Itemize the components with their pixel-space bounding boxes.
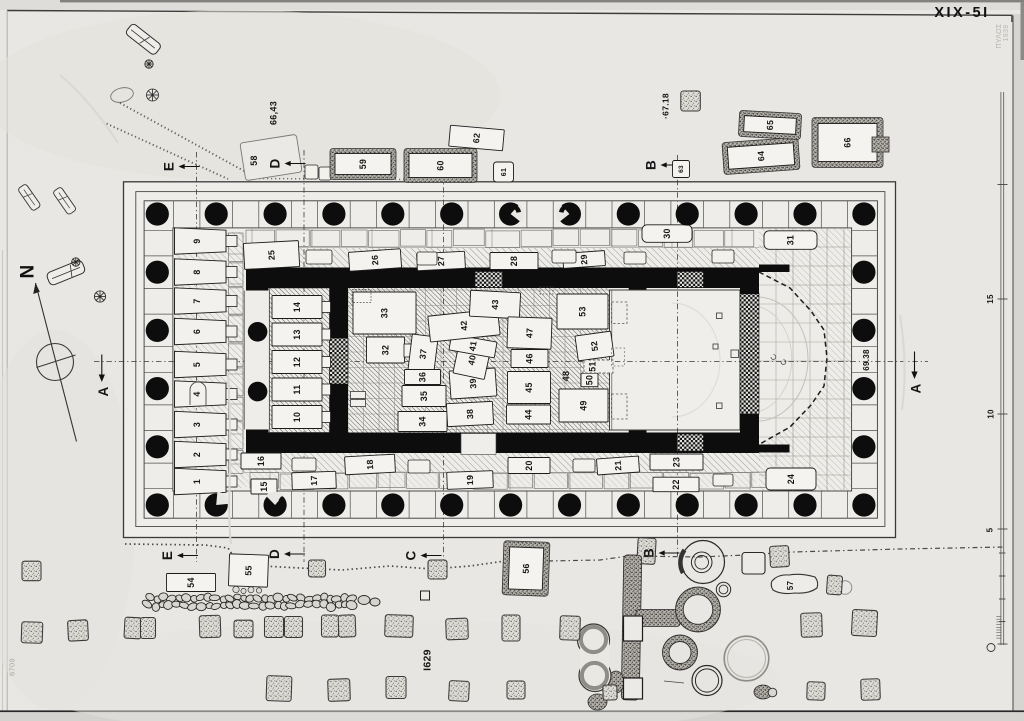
svg-text:65: 65 bbox=[765, 120, 776, 131]
svg-text:5: 5 bbox=[192, 362, 202, 367]
svg-text:4: 4 bbox=[192, 391, 202, 396]
svg-text:6709: 6709 bbox=[8, 658, 17, 676]
svg-text:66: 66 bbox=[842, 137, 852, 147]
svg-text:1939: 1939 bbox=[1003, 25, 1010, 42]
svg-text:I629: I629 bbox=[422, 649, 434, 671]
svg-text:31: 31 bbox=[785, 235, 795, 245]
svg-text:62: 62 bbox=[471, 132, 482, 143]
svg-text:48: 48 bbox=[561, 371, 571, 382]
svg-text:18: 18 bbox=[365, 459, 376, 470]
svg-text:10: 10 bbox=[987, 409, 996, 419]
svg-text:51: 51 bbox=[587, 361, 597, 371]
svg-text:23: 23 bbox=[671, 457, 681, 467]
svg-text:47: 47 bbox=[524, 328, 534, 339]
svg-text:64: 64 bbox=[756, 150, 767, 161]
svg-text:D: D bbox=[267, 549, 282, 559]
svg-text:A: A bbox=[96, 386, 111, 396]
svg-text:9: 9 bbox=[192, 238, 202, 243]
svg-text:E: E bbox=[160, 551, 175, 560]
svg-text:50: 50 bbox=[584, 375, 594, 385]
svg-text:56: 56 bbox=[521, 563, 531, 574]
svg-text:63: 63 bbox=[678, 165, 685, 173]
svg-text:1: 1 bbox=[192, 479, 202, 484]
svg-text:17: 17 bbox=[309, 475, 319, 486]
svg-text:29: 29 bbox=[579, 254, 590, 265]
svg-text:69.38: 69.38 bbox=[862, 349, 871, 371]
svg-text:D: D bbox=[268, 158, 283, 168]
svg-text:12: 12 bbox=[292, 357, 302, 367]
svg-text:6: 6 bbox=[192, 329, 202, 334]
svg-text:30: 30 bbox=[662, 228, 672, 238]
svg-text:ΠΥΛΟΣ: ΠΥΛΟΣ bbox=[996, 23, 1003, 48]
svg-text:35: 35 bbox=[419, 391, 429, 401]
svg-text:3: 3 bbox=[192, 422, 202, 427]
svg-text:N: N bbox=[17, 264, 38, 278]
svg-text:5: 5 bbox=[986, 527, 995, 532]
svg-text:A: A bbox=[909, 383, 924, 393]
svg-text:21: 21 bbox=[613, 460, 624, 471]
svg-text:26: 26 bbox=[370, 254, 381, 265]
svg-text:38: 38 bbox=[465, 409, 476, 420]
svg-text:13: 13 bbox=[292, 329, 302, 339]
svg-text:10: 10 bbox=[292, 412, 302, 422]
svg-text:34: 34 bbox=[417, 416, 427, 426]
svg-text:36: 36 bbox=[417, 372, 427, 382]
svg-text:XIX-5I: XIX-5I bbox=[934, 5, 989, 21]
svg-text:45: 45 bbox=[524, 382, 534, 392]
svg-text:28: 28 bbox=[509, 256, 519, 266]
svg-text:14: 14 bbox=[292, 302, 302, 312]
svg-text:42: 42 bbox=[458, 320, 469, 331]
svg-text:·67.18: ·67.18 bbox=[660, 93, 670, 119]
svg-text:58: 58 bbox=[249, 155, 259, 165]
svg-text:37: 37 bbox=[417, 348, 428, 360]
svg-text:24: 24 bbox=[786, 474, 796, 484]
svg-text:2: 2 bbox=[192, 452, 202, 457]
svg-text:44: 44 bbox=[523, 409, 533, 419]
svg-text:16: 16 bbox=[256, 456, 266, 466]
svg-text:46: 46 bbox=[524, 353, 534, 363]
svg-text:57: 57 bbox=[786, 581, 795, 591]
svg-text:60: 60 bbox=[435, 160, 445, 170]
svg-text:33: 33 bbox=[379, 308, 389, 318]
svg-text:32: 32 bbox=[380, 345, 390, 355]
svg-text:40: 40 bbox=[466, 354, 478, 366]
svg-text:C: C bbox=[404, 550, 419, 560]
svg-text:41: 41 bbox=[467, 340, 479, 352]
svg-text:43: 43 bbox=[490, 299, 501, 310]
svg-text:66,43: 66,43 bbox=[269, 101, 279, 125]
svg-text:B: B bbox=[644, 160, 659, 170]
svg-text:49: 49 bbox=[578, 400, 588, 410]
svg-text:52: 52 bbox=[589, 340, 600, 352]
svg-text:61: 61 bbox=[501, 168, 508, 176]
svg-text:19: 19 bbox=[465, 475, 475, 486]
svg-text:20: 20 bbox=[524, 460, 534, 470]
svg-text:55: 55 bbox=[243, 565, 253, 576]
svg-text:39: 39 bbox=[468, 378, 479, 389]
svg-text:54: 54 bbox=[186, 577, 196, 587]
svg-text:7: 7 bbox=[192, 298, 202, 303]
svg-text:59: 59 bbox=[358, 159, 368, 169]
svg-text:15: 15 bbox=[986, 294, 995, 304]
svg-text:E: E bbox=[162, 162, 177, 171]
svg-text:15: 15 bbox=[259, 481, 269, 491]
svg-text:53: 53 bbox=[577, 306, 587, 316]
svg-text:8: 8 bbox=[192, 269, 202, 274]
svg-text:25: 25 bbox=[266, 250, 277, 261]
svg-text:22: 22 bbox=[671, 479, 681, 489]
svg-text:11: 11 bbox=[292, 385, 302, 395]
